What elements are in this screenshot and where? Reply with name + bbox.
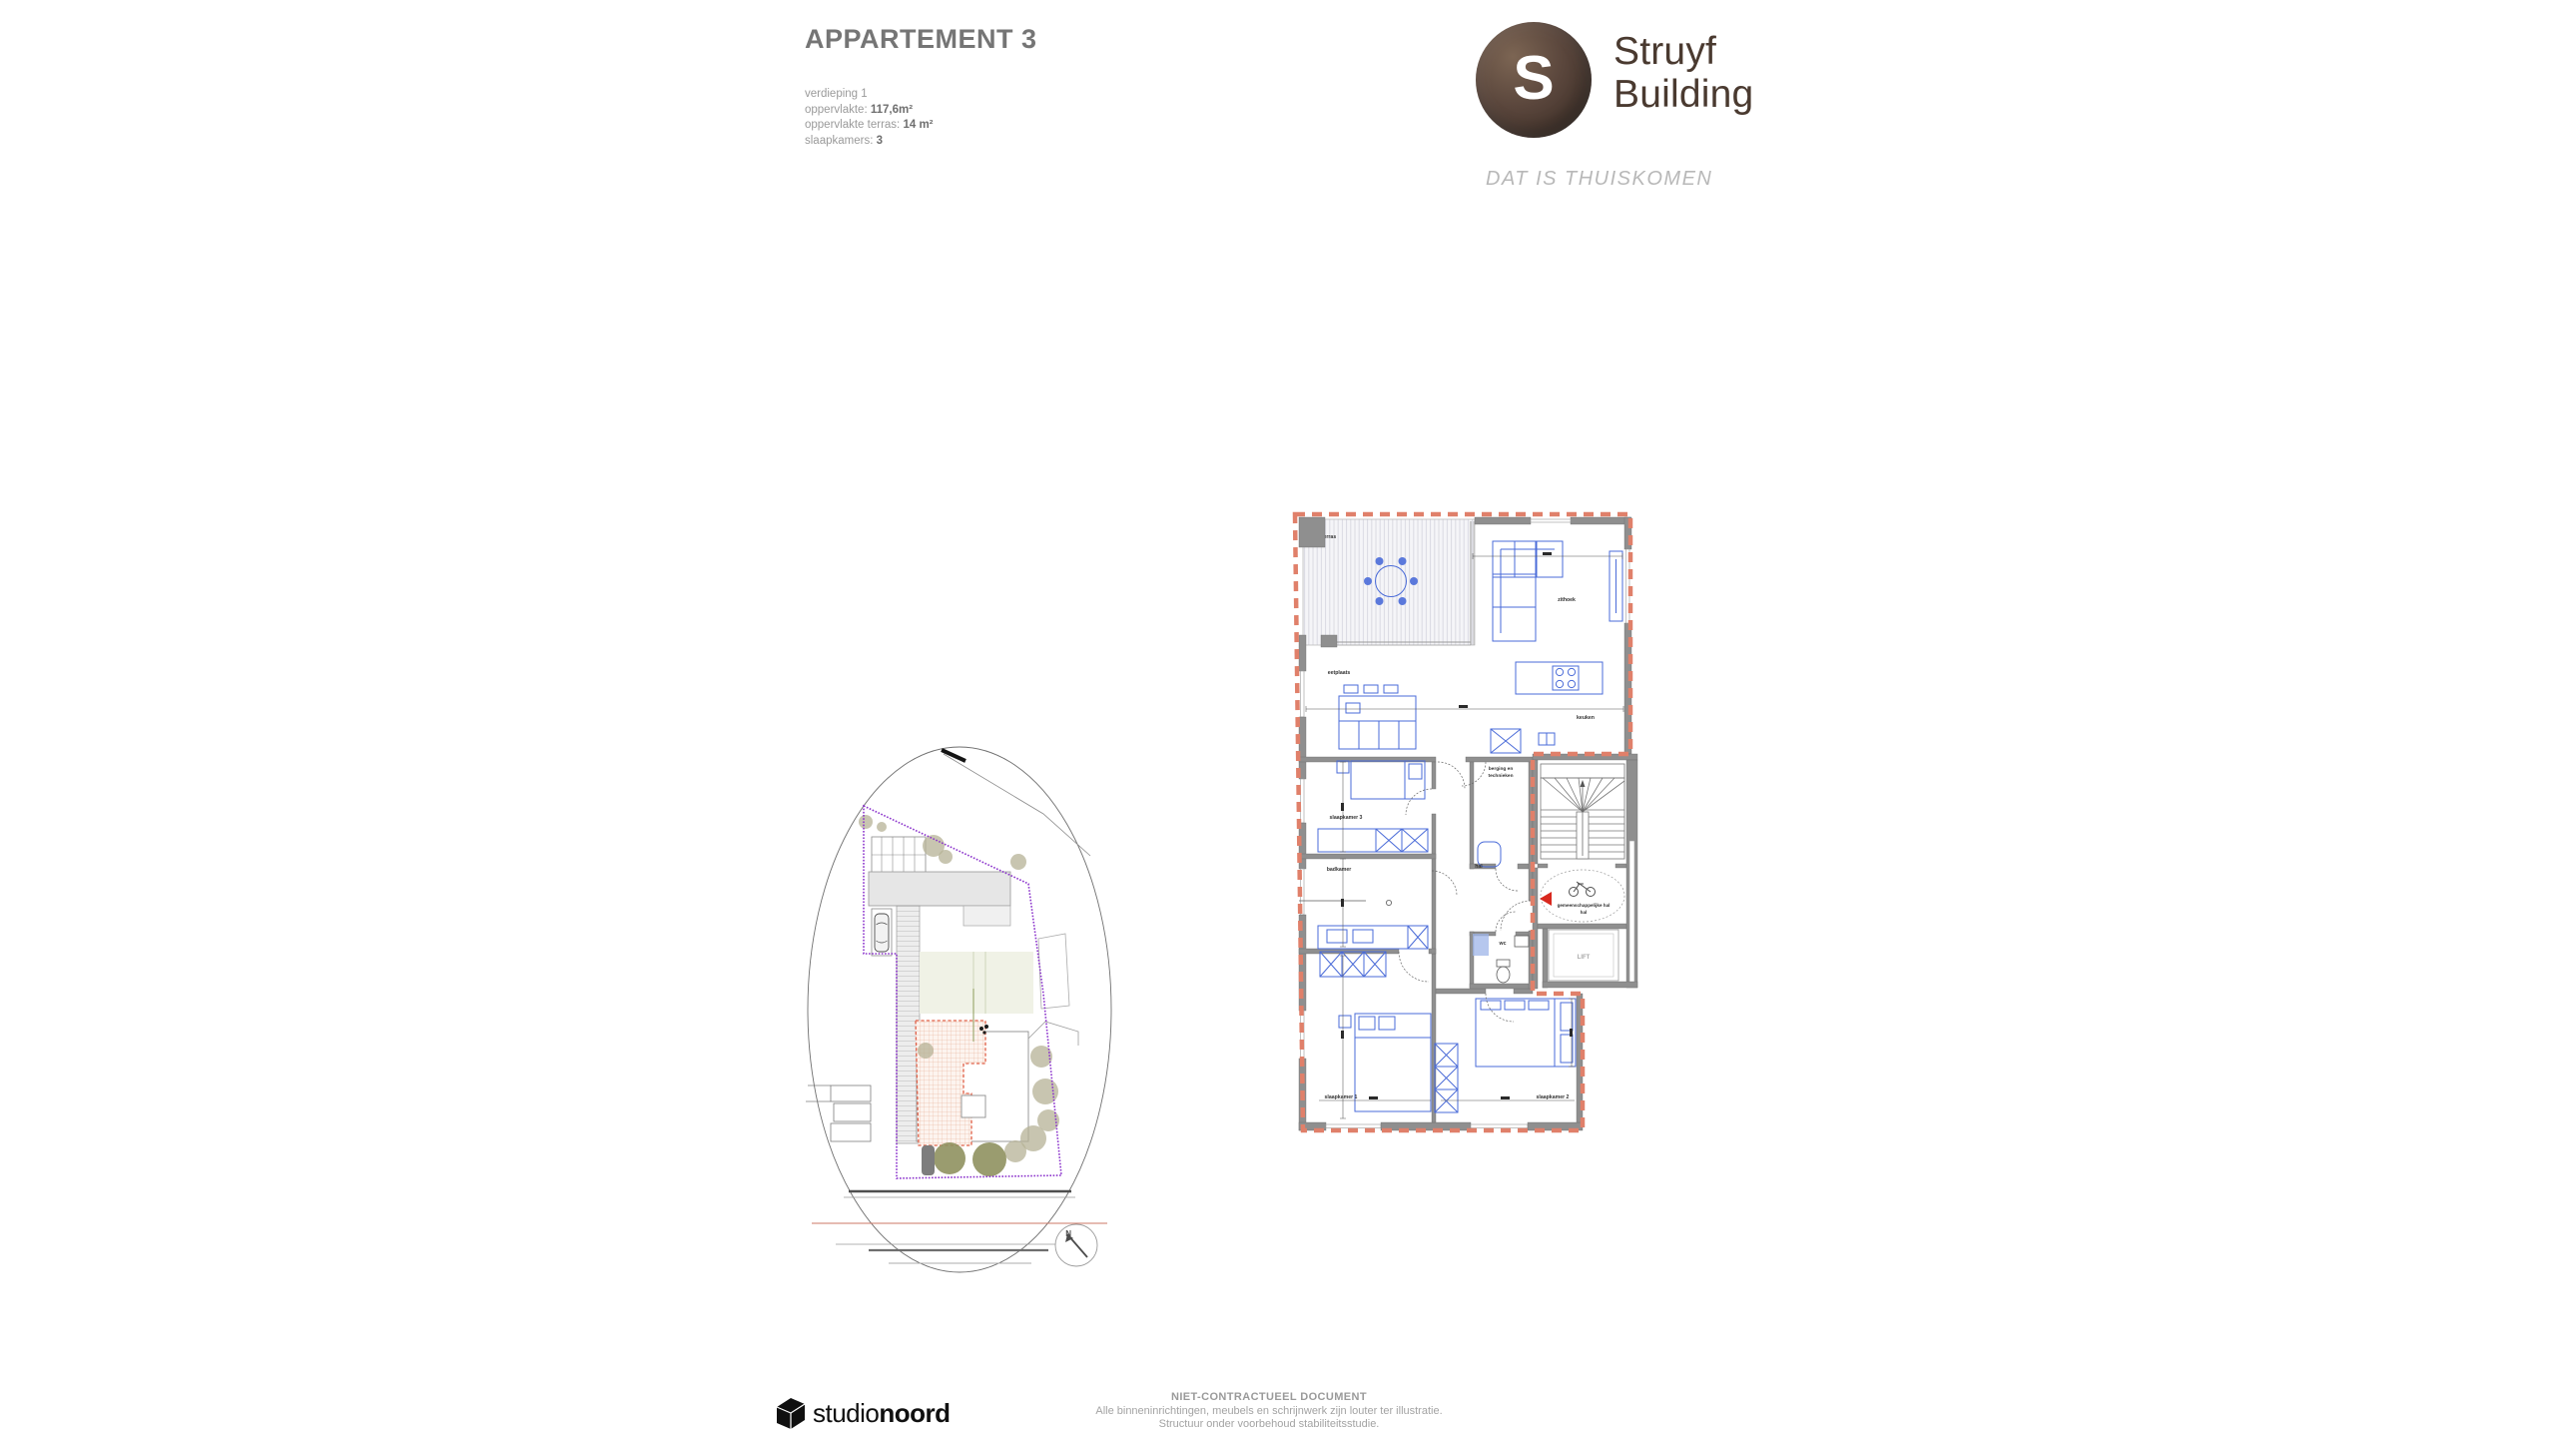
studio-cube-icon: [774, 1394, 808, 1432]
room-label-wc: wc: [1499, 941, 1507, 947]
disclaimer-title: NIET-CONTRACTUEEL DOCUMENT: [1019, 1391, 1519, 1405]
room-label-slaapkamer2: slaapkamer 2: [1537, 1094, 1570, 1100]
north-label: N: [1065, 1229, 1071, 1238]
studio-logo: studionoord: [774, 1394, 951, 1432]
room-label-hal-common: hal: [1581, 910, 1588, 915]
apartment-details: verdieping 1 oppervlakte: 117,6m² opperv…: [805, 87, 1224, 149]
bedroom2: slaapkamer 2: [1435, 999, 1576, 1112]
disclaimer: NIET-CONTRACTUEEL DOCUMENT Alle binnenin…: [1019, 1391, 1519, 1432]
page-title: APPARTEMENT 3: [805, 24, 1224, 55]
apartment-header: APPARTEMENT 3 verdieping 1 oppervlakte: …: [805, 24, 1224, 149]
street-trees: [934, 1142, 1006, 1176]
room-label-zithoek: zithoek: [1558, 597, 1576, 603]
bedroom3: slaapkamer 3: [1318, 761, 1428, 852]
site-plan: N: [794, 734, 1123, 1278]
parking-car: [872, 909, 892, 956]
site-entry-tick: [942, 750, 966, 761]
bathroom: badkamer: [1299, 867, 1428, 949]
detail-terrace: oppervlakte terras: 14 m²: [805, 118, 1224, 134]
room-label-slaapkamer1: slaapkamer 1: [1325, 1094, 1358, 1100]
floor-plan: terras: [1291, 511, 1642, 1138]
disclaimer-line2: Structuur onder voorbehoud stabiliteitss…: [1019, 1418, 1519, 1432]
detail-area: oppervlakte: 117,6m²: [805, 103, 1224, 119]
brand-name: Struyf Building: [1613, 30, 1753, 116]
room-label-berging1: berging en: [1489, 766, 1514, 772]
parked-vehicle: [922, 1145, 935, 1175]
room-label-lift: LIFT: [1578, 955, 1591, 961]
stairwell: [1541, 764, 1624, 859]
room-label-keuken: keuken: [1577, 715, 1595, 721]
room-label-eetplaats: eetplaats: [1328, 670, 1351, 676]
terrace: terras: [1303, 519, 1475, 645]
north-arrow: N: [1055, 1224, 1097, 1266]
studio-wordmark: studionoord: [813, 1398, 951, 1429]
room-label-berging2: technieken: [1488, 773, 1513, 779]
room-label-hal: hal: [1475, 864, 1483, 870]
room-label-badkamer: badkamer: [1327, 867, 1352, 873]
plot-diagonal-line: [944, 754, 1090, 856]
detail-bedrooms: slaapkamers: 3: [805, 134, 1224, 150]
brand-initial: S: [1513, 43, 1554, 114]
bedroom1: slaapkamer 1: [1320, 952, 1431, 1111]
room-label-slaapkamer3: slaapkamer 3: [1330, 815, 1363, 821]
detail-floor: verdieping 1: [805, 87, 1224, 103]
brand-logo-icon: S: [1476, 22, 1592, 138]
disclaimer-line1: Alle binneninrichtingen, meubels en schr…: [1019, 1405, 1519, 1419]
room-label-gemeenschappelijke-hal: gemeenschappelijke hal: [1558, 903, 1610, 908]
brand-tagline: DAT IS THUISKOMEN: [1486, 168, 1895, 191]
storage-wc: berging en technieken wc: [1473, 766, 1529, 983]
doors: [1399, 762, 1531, 1022]
document-page: { "header": { "title": "APPARTEMENT 3", …: [0, 0, 2576, 1438]
brand-block: S Struyf Building DAT IS THUISKOMEN: [1476, 22, 1895, 191]
